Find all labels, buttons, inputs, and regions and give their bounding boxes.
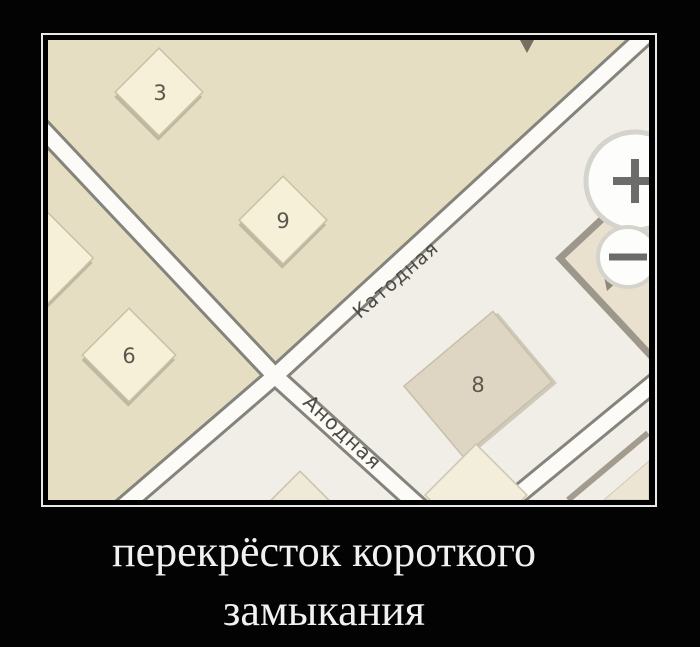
- caption: перекрёсток короткого замыкания: [0, 522, 648, 640]
- building-8-number: 8: [471, 373, 484, 397]
- map-image[interactable]: 3 9 6 8 Катодная Анодная: [48, 40, 649, 500]
- building-6-number: 6: [122, 344, 135, 368]
- caption-line-2: замыкания: [0, 581, 648, 640]
- zoom-out-button[interactable]: [598, 227, 649, 287]
- building-3-number: 3: [153, 81, 166, 105]
- caption-line-1: перекрёсток короткого: [0, 522, 648, 581]
- demotivator-page: 3 9 6 8 Катодная Анодная: [0, 0, 700, 647]
- building-9-number: 9: [276, 209, 289, 233]
